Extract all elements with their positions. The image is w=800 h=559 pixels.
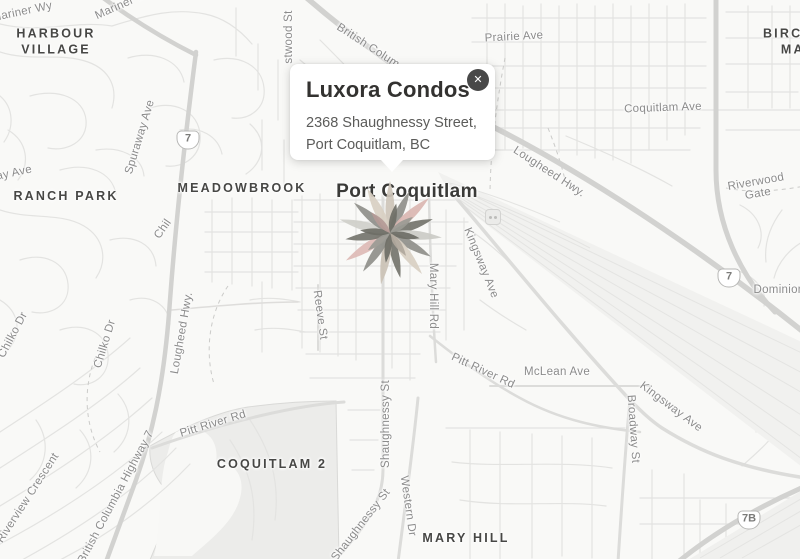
street-label-kingsway-ave: Kingsway Ave <box>461 226 500 300</box>
street-label-shaughnessy-st: Shaughnessy St <box>380 380 392 468</box>
street-label-kingsway-ave: Kingsway Ave <box>637 380 704 435</box>
area-label-meadowbrook: MEADOWBROOK <box>177 181 306 197</box>
street-label-chilko-dr: Chilko Dr <box>0 310 30 360</box>
street-label-shaughnessy-st: Shaughnessy St <box>329 487 393 559</box>
area-label-harbour-village: HARBOUR VILLAGE <box>16 26 95 57</box>
street-label-mariner-wy: Mariner Wy <box>0 0 53 24</box>
street-label-pitt-river-rd: Pitt River Rd <box>179 408 248 439</box>
street-label-lougheed-hwy: Lougheed Hwy. <box>169 291 195 375</box>
area-label-mary-hill: MARY HILL <box>422 531 509 547</box>
map-popup: ✕ Luxora Condos 2368 Shaughnessy Street,… <box>290 64 495 160</box>
street-label-mariner-wy: Mariner Wy <box>93 0 154 22</box>
street-label-western-dr: Western Dr <box>398 475 418 537</box>
street-label-coquitlam-ave: Coquitlam Ave <box>624 101 702 116</box>
area-label-ranch-park: RANCH PARK <box>13 189 118 205</box>
popup-title: Luxora Condos <box>306 77 479 103</box>
street-label-broadway-st: Broadway St <box>625 394 642 463</box>
popup-tail <box>381 160 403 172</box>
street-label-dominion: Dominion <box>754 284 800 296</box>
area-label-coquitlam-2: COQUITLAM 2 <box>217 457 327 473</box>
street-label-riverview-crescent: Riverview Crescent <box>0 451 61 545</box>
street-label-reeve-st: Reeve St <box>311 290 330 341</box>
highway-shield-7b: 7B <box>738 511 761 530</box>
street-label-prairie-ave: Prairie Ave <box>484 29 543 44</box>
street-label-riverwood-gate: Riverwood Gate <box>727 171 787 205</box>
street-label-chil: Chil <box>152 217 174 241</box>
street-label-lougheed-hwy: Lougheed Hwy. <box>511 144 587 199</box>
transit-station-icon <box>485 209 501 225</box>
highway-shield-7: 7 <box>177 131 200 150</box>
map-canvas[interactable]: Port CoquitlamHARBOUR VILLAGERANCH PARKM… <box>0 0 800 559</box>
street-label-spuraway-ave: Spuraway Ave <box>123 98 157 175</box>
popup-address-line1: 2368 Shaughnessy Street, <box>306 115 477 131</box>
street-label-mclean-ave: McLean Ave <box>524 366 590 378</box>
street-label-mary-hill-rd: Mary Hill Rd <box>427 263 439 329</box>
popup-address: 2368 Shaughnessy Street, Port Coquitlam,… <box>306 112 479 157</box>
street-label-pitt-river-rd: Pitt River Rd <box>449 351 516 391</box>
street-label-stwood-st: stwood St <box>283 10 295 63</box>
popup-address-line2: Port Coquitlam, BC <box>306 137 430 153</box>
street-label-chilko-dr: Chilko Dr <box>92 318 118 369</box>
area-label-birchland-manor: BIRCHLAND MANOR <box>763 26 800 57</box>
street-label-british-columbia-highway-7: British Columbia Highway 7 <box>76 429 156 559</box>
popup-close-button[interactable]: ✕ <box>467 69 489 91</box>
highway-shield-7: 7 <box>718 269 741 288</box>
street-label-way-ave: way Ave <box>0 163 33 184</box>
city-label-port-coquitlam: Port Coquitlam <box>336 181 478 203</box>
